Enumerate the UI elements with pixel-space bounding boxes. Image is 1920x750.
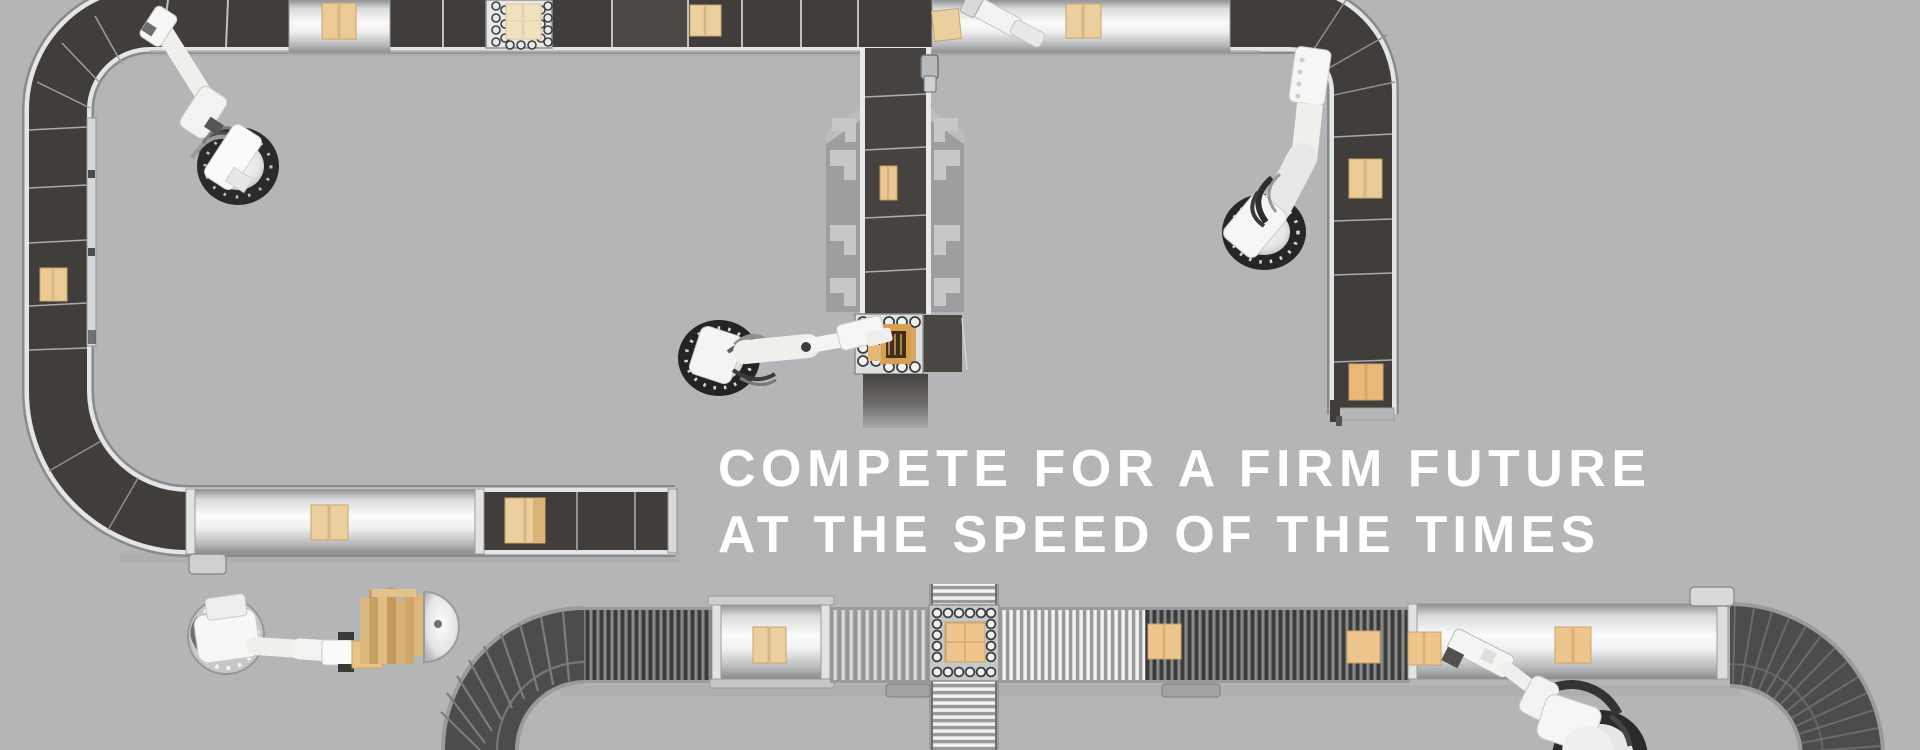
svg-text:AT THE SPEED OF THE TIMES: AT THE SPEED OF THE TIMES <box>718 506 1595 564</box>
svg-text:COMPETE FOR A FIRM FUTURE: COMPETE FOR A FIRM FUTURE <box>718 440 1646 498</box>
